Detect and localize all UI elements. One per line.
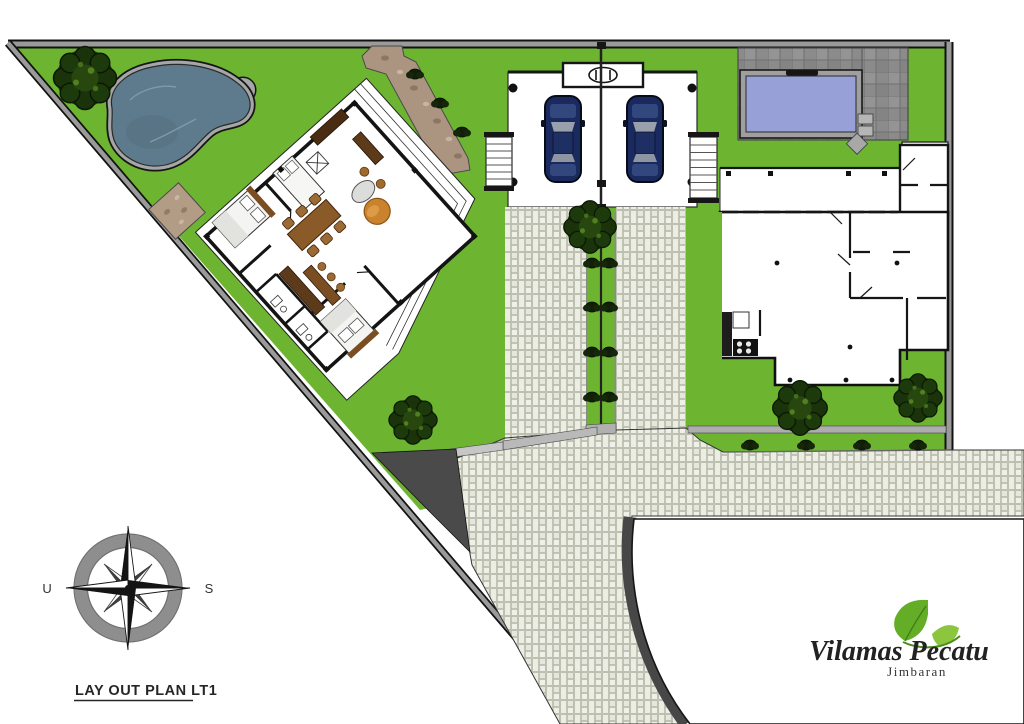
carport-emblem <box>589 68 617 83</box>
tree-2 <box>564 201 617 254</box>
bath-rooms <box>900 145 948 215</box>
tree-5 <box>894 374 942 422</box>
guest-house <box>720 145 948 385</box>
plan-title: LAY OUT PLAN LT1 <box>75 683 217 699</box>
driveway-right <box>616 207 686 430</box>
compass-label-east: S <box>205 581 214 596</box>
title-block: LAY OUT PLAN LT1 <box>74 683 217 701</box>
tree-3 <box>389 396 437 444</box>
compass-label-west: U <box>42 581 51 596</box>
car-2 <box>623 96 667 182</box>
tree-4 <box>773 381 828 436</box>
brand-subtitle: Jimbaran <box>887 664 947 679</box>
car-1 <box>541 96 585 182</box>
stairs-right <box>688 132 719 203</box>
tree-1 <box>54 47 117 110</box>
public-road <box>632 519 1024 724</box>
site-plan-page: U S LAY OUT PLAN LT1 Vilamas Pecatu Jimb… <box>0 0 1024 724</box>
lawn-wedge <box>686 212 722 424</box>
brand-name: Vilamas Pecatu <box>809 636 989 667</box>
site-plan-drawing: U S LAY OUT PLAN LT1 Vilamas Pecatu Jimb… <box>0 0 1024 724</box>
pool-ladder <box>786 70 818 76</box>
stairs-left <box>484 132 514 191</box>
